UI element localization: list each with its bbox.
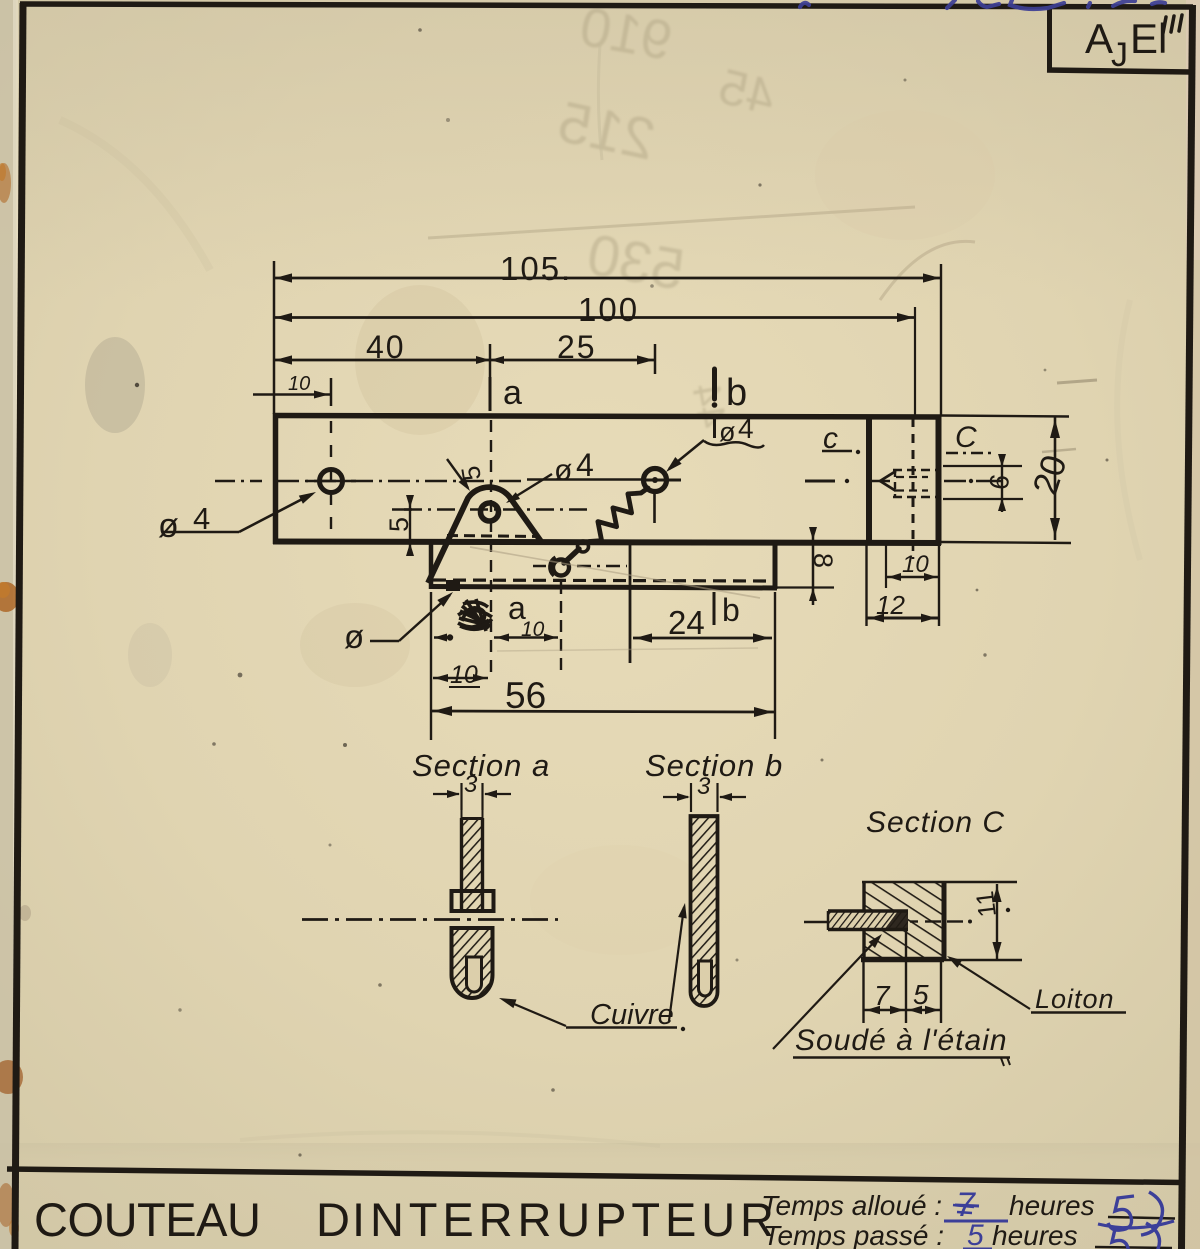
svg-text:10: 10 xyxy=(288,373,310,395)
svg-text:A: A xyxy=(1085,15,1113,62)
svg-text:b: b xyxy=(726,372,747,414)
svg-text:heures: heures xyxy=(1009,1190,1095,1221)
svg-text:heures: heures xyxy=(992,1220,1078,1249)
svg-text:Temps alloué :: Temps alloué : xyxy=(761,1190,942,1221)
svg-text:5: 5 xyxy=(967,1219,984,1249)
svg-text:3: 3 xyxy=(697,773,711,800)
svg-text:4: 4 xyxy=(738,413,754,444)
svg-text:ø: ø xyxy=(344,618,364,655)
svg-text:10: 10 xyxy=(902,551,929,578)
svg-text:INTERRUPTEUR: INTERRUPTEUR xyxy=(352,1193,776,1246)
svg-text:5: 5 xyxy=(913,979,929,1010)
svg-text:105.: 105. xyxy=(500,250,572,287)
svg-text:7: 7 xyxy=(874,980,891,1011)
svg-text:5: 5 xyxy=(384,517,414,532)
svg-text:Temps passé :: Temps passé : xyxy=(763,1220,944,1249)
svg-text:100: 100 xyxy=(578,291,639,328)
svg-text:Soudé à l'étain: Soudé à l'étain xyxy=(795,1024,1008,1057)
svg-text:Section a: Section a xyxy=(412,748,550,783)
svg-text:COUTEAU: COUTEAU xyxy=(34,1193,266,1246)
svg-text:24: 24 xyxy=(668,604,705,641)
svg-text:8: 8 xyxy=(808,553,838,568)
svg-text:56: 56 xyxy=(505,675,546,716)
svg-text:ø: ø xyxy=(158,507,179,545)
svg-text:25: 25 xyxy=(557,329,597,365)
svg-text:a: a xyxy=(503,374,522,412)
svg-text:ø: ø xyxy=(554,454,572,487)
svg-text:4: 4 xyxy=(193,501,210,536)
svg-text:Loiton: Loiton xyxy=(1035,984,1115,1014)
svg-text:C: C xyxy=(955,421,977,454)
svg-text:D: D xyxy=(316,1193,350,1246)
svg-text:40: 40 xyxy=(366,329,406,365)
svg-text:11: 11 xyxy=(971,890,1002,919)
svg-text:12: 12 xyxy=(876,590,905,620)
svg-text:Cuivre: Cuivre xyxy=(590,999,674,1031)
svg-text:Section C: Section C xyxy=(866,806,1005,839)
svg-text:10: 10 xyxy=(450,661,478,689)
svg-text:3: 3 xyxy=(464,771,478,798)
svg-text:J: J xyxy=(1111,36,1128,74)
svg-text:El: El xyxy=(1130,15,1167,62)
svg-text:b: b xyxy=(722,592,740,628)
svg-text:4: 4 xyxy=(576,447,594,483)
svg-text:Section b: Section b xyxy=(645,748,783,783)
